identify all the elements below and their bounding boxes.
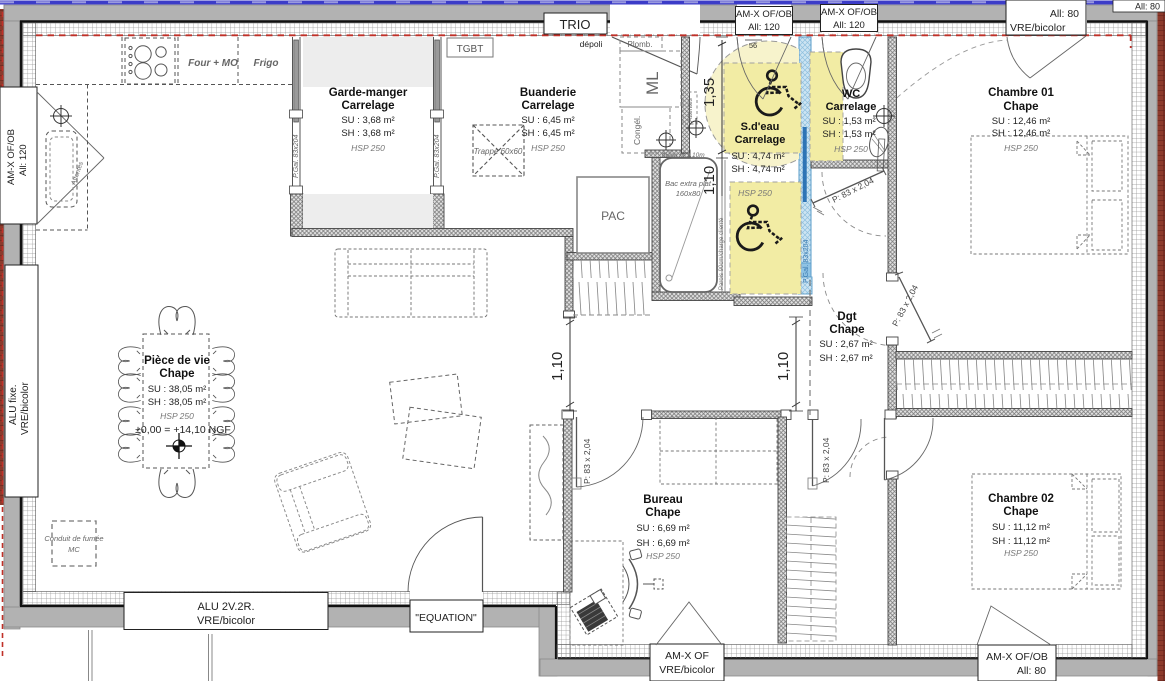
svg-text:All: 80: All: 80	[1050, 8, 1079, 20]
svg-text:S.d'eau: S.d'eau	[741, 121, 780, 133]
svg-text:ALU fixe.: ALU fixe.	[8, 384, 19, 425]
svg-text:Carrelage: Carrelage	[826, 101, 877, 113]
svg-text:P.Gal. 83x204: P.Gal. 83x204	[803, 239, 810, 283]
svg-text:Chape: Chape	[829, 324, 864, 336]
svg-text:TRIO: TRIO	[559, 17, 590, 32]
svg-text:Buanderie: Buanderie	[520, 87, 576, 99]
svg-text:P: 83 x 2,04: P: 83 x 2,04	[582, 438, 592, 484]
svg-text:HSP 250: HSP 250	[531, 143, 565, 153]
svg-text:oison ht 1,10m: oison ht 1,10m	[662, 152, 705, 159]
svg-text:VRE/bicolor: VRE/bicolor	[1010, 22, 1066, 34]
svg-text:HSP 250: HSP 250	[351, 143, 385, 153]
svg-text:SH : 4,74 m²: SH : 4,74 m²	[731, 164, 784, 175]
svg-text:WC: WC	[842, 88, 860, 100]
svg-text:AM-X OF/OB: AM-X OF/OB	[986, 651, 1048, 663]
svg-text:P.Gal. 83x204: P.Gal. 83x204	[434, 134, 441, 178]
svg-text:Garde-manger: Garde-manger	[329, 87, 408, 99]
svg-text:±0,00 = +14,10 NGF: ±0,00 = +14,10 NGF	[135, 424, 231, 436]
svg-text:SH : 1,53 m²: SH : 1,53 m²	[822, 129, 875, 140]
svg-text:Congél.: Congél.	[632, 116, 642, 145]
svg-text:Bureau: Bureau	[643, 494, 683, 506]
svg-text:SU : 2,67 m²: SU : 2,67 m²	[819, 339, 872, 350]
svg-text:Plomb.: Plomb.	[628, 40, 653, 49]
svg-text:HSP 250: HSP 250	[160, 411, 194, 421]
svg-text:SH : 3,68 m²: SH : 3,68 m²	[341, 128, 394, 139]
svg-text:MC: MC	[68, 545, 80, 554]
svg-text:Frigo: Frigo	[254, 58, 279, 69]
svg-text:HSP 250: HSP 250	[646, 551, 680, 561]
svg-text:ML: ML	[643, 71, 662, 95]
svg-text:HSP 250: HSP 250	[1004, 548, 1038, 558]
svg-text:Dgt: Dgt	[837, 311, 856, 323]
svg-text:160x80: 160x80	[676, 189, 701, 198]
svg-text:SH : 12,46 m²: SH : 12,46 m²	[992, 128, 1051, 139]
svg-text:SU : 11,12 m²: SU : 11,12 m²	[992, 522, 1050, 533]
svg-text:"EQUATION": "EQUATION"	[415, 612, 477, 624]
svg-text:1,10: 1,10	[775, 352, 792, 381]
svg-text:PAC: PAC	[601, 209, 625, 223]
svg-text:SU : 38,05 m²: SU : 38,05 m²	[148, 384, 207, 395]
svg-text:HSP 250: HSP 250	[834, 144, 868, 154]
svg-text:SH : 2,67 m²: SH : 2,67 m²	[819, 353, 872, 364]
svg-text:All: 120: All: 120	[748, 22, 780, 33]
svg-text:SU : 12,46 m²: SU : 12,46 m²	[992, 116, 1051, 127]
svg-text:AM-X OF/OB: AM-X OF/OB	[736, 9, 792, 20]
svg-text:Trappe 60x60: Trappe 60x60	[474, 147, 523, 156]
svg-text:AM-X OF: AM-X OF	[665, 650, 709, 662]
svg-text:Parois 90cm/charge clienté: Parois 90cm/charge clienté	[719, 217, 725, 290]
svg-text:AM-X OF/OB: AM-X OF/OB	[821, 7, 877, 18]
svg-text:All: 80: All: 80	[1017, 665, 1046, 677]
svg-text:Four + MO: Four + MO	[188, 58, 238, 69]
svg-text:dépoli: dépoli	[580, 39, 603, 49]
svg-text:SH : 6,69 m²: SH : 6,69 m²	[636, 538, 689, 549]
svg-text:SH : 11,12 m²: SH : 11,12 m²	[992, 536, 1050, 547]
svg-text:Pièce de vie: Pièce de vie	[144, 355, 210, 367]
svg-text:All: 80: All: 80	[1135, 2, 1160, 12]
svg-text:1,10: 1,10	[701, 166, 718, 195]
svg-text:VRE/bicolor: VRE/bicolor	[197, 615, 255, 627]
svg-text:P: 83 x 2,04: P: 83 x 2,04	[821, 437, 831, 483]
svg-text:HSP 250: HSP 250	[1004, 143, 1038, 153]
svg-text:All: 120: All: 120	[833, 20, 865, 31]
svg-text:Attentes: Attentes	[687, 97, 694, 122]
svg-text:Carrelage: Carrelage	[735, 134, 786, 146]
svg-text:Chape: Chape	[1003, 101, 1038, 113]
svg-text:56: 56	[749, 41, 757, 50]
svg-text:ALU 2V.2R.: ALU 2V.2R.	[197, 601, 254, 613]
svg-text:Chape: Chape	[159, 368, 194, 380]
svg-text:SU : 4,74 m²: SU : 4,74 m²	[731, 151, 784, 162]
svg-text:Carrelage: Carrelage	[521, 100, 574, 112]
svg-text:SH : 6,45 m²: SH : 6,45 m²	[521, 128, 574, 139]
svg-text:Chape: Chape	[645, 507, 680, 519]
svg-text:VRE/bicolor: VRE/bicolor	[20, 382, 31, 435]
svg-text:SU : 6,45 m²: SU : 6,45 m²	[521, 115, 574, 126]
svg-text:Carrelage: Carrelage	[341, 100, 394, 112]
svg-text:Conduit de fumée: Conduit de fumée	[44, 534, 103, 543]
svg-text:Chambre 01: Chambre 01	[988, 87, 1054, 99]
svg-text:TGBT: TGBT	[457, 44, 484, 55]
svg-text:SU : 6,69 m²: SU : 6,69 m²	[636, 523, 689, 534]
svg-text:SU : 3,68 m²: SU : 3,68 m²	[341, 115, 394, 126]
svg-text:1,35: 1,35	[701, 78, 718, 107]
svg-text:All: 120: All: 120	[18, 144, 29, 176]
svg-text:Chape: Chape	[1003, 506, 1038, 518]
svg-text:SU : 1,53 m²: SU : 1,53 m²	[822, 116, 875, 127]
svg-text:SH : 38,05 m²: SH : 38,05 m²	[148, 397, 207, 408]
svg-text:Chambre 02: Chambre 02	[988, 493, 1054, 505]
svg-text:AM-X OF/OB: AM-X OF/OB	[6, 129, 17, 185]
svg-text:VRE/bicolor: VRE/bicolor	[659, 664, 715, 676]
svg-text:P.Gal. 83x204: P.Gal. 83x204	[293, 134, 300, 178]
svg-text:1,10: 1,10	[549, 352, 566, 381]
svg-text:HSP 250: HSP 250	[738, 188, 772, 198]
